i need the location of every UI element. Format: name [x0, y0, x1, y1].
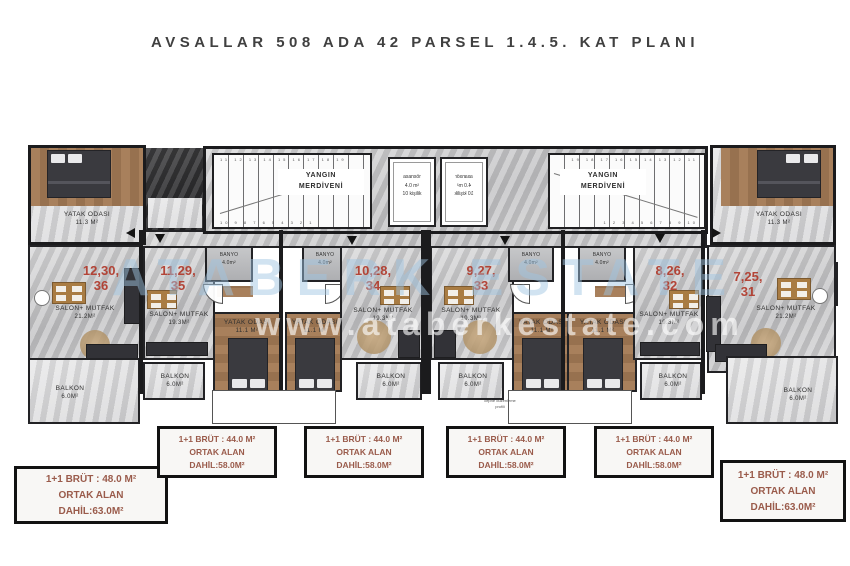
elevator-1: asansör 4.0 m² 10 kişilik — [388, 157, 436, 227]
bed-pillow — [544, 379, 559, 388]
sofa-icon — [146, 342, 208, 356]
room-name: BALKON — [644, 372, 702, 381]
room-name: BALKON — [444, 372, 502, 381]
bed-icon — [228, 338, 268, 391]
watermark-brand: ATABERK ESTATE — [40, 248, 810, 308]
bed-pillow — [804, 154, 818, 163]
room-label-balcony: BALKON 6.0M² — [444, 372, 502, 389]
bed-pillow — [605, 379, 620, 388]
entry-arrow-down-icon — [500, 236, 510, 245]
watermark-url: www.ataberkestate.com — [240, 306, 760, 343]
bed-icon — [583, 338, 623, 391]
room-area: 19.3M² — [145, 319, 213, 327]
balcony: BALKON 6.0M² — [640, 362, 702, 400]
legend-line3: DAHİL:58.0M² — [160, 459, 274, 471]
entry-arrow-down-icon — [655, 234, 665, 243]
legend-line1: 1+1 BRÜT : 44.0 M² — [160, 433, 274, 445]
entry-arrow-right-icon — [712, 228, 721, 238]
room-name: YATAK ODASI — [39, 210, 135, 219]
elevator-capacity: 10 kişilik — [446, 190, 482, 199]
building-core: 11 12 13 14 15 16 17 18 19 10 9 8 7 6 5 … — [203, 146, 708, 234]
legend-line2: ORTAK ALAN — [160, 446, 274, 458]
legend-line1: 1+1 BRÜT : 48.0 M² — [17, 472, 165, 487]
balcony: BALKON 6.0M² — [28, 358, 140, 424]
room-name: BALKON — [40, 384, 100, 393]
fire-stairs-label-line2: MERDİVENİ — [278, 182, 364, 193]
facade-note-line2: profili — [474, 404, 526, 410]
bed-blanket — [758, 181, 820, 184]
elevator-area: 4.0 m² — [394, 182, 430, 191]
elevator-capacity: 10 kişilik — [394, 190, 430, 199]
room-name: BALKON — [768, 386, 828, 395]
balcony: BALKON 6.0M² — [438, 362, 504, 400]
bed-pillow — [68, 154, 82, 163]
bed-icon — [522, 338, 562, 391]
fire-stairs-label-line1: YANGIN — [278, 171, 364, 182]
fire-stairs-label-line2: MERDİVENİ — [560, 182, 646, 193]
stair-numbers-top: 11 12 13 14 15 16 17 18 19 — [220, 157, 347, 162]
room-area: 21.2M² — [44, 313, 126, 321]
fire-stairs-label-right: YANGIN MERDİVENİ — [560, 169, 646, 195]
balcony: BALKON 6.0M² — [726, 356, 838, 424]
stair-numbers-top: 19 18 17 16 15 14 13 12 11 — [571, 157, 698, 162]
legend-line2: ORTAK ALAN — [307, 446, 421, 458]
room-name: YATAK ODASI — [731, 210, 827, 219]
wall-column-dot — [812, 288, 828, 304]
legend-line1: 1+1 BRÜT : 48.0 M² — [723, 468, 843, 483]
room-area: 6.0M² — [362, 381, 420, 389]
elevator-1-label: asansör 4.0 m² 10 kişilik — [393, 162, 431, 222]
room-name: BALKON — [362, 372, 420, 381]
room-label-balcony: BALKON 6.0M² — [768, 386, 828, 403]
room-label-balcony: BALKON 6.0M² — [644, 372, 702, 389]
bed-icon — [757, 150, 821, 198]
legend-line3: DAHİL:63.0M² — [17, 504, 165, 519]
legend-line3: DAHİL:63.0M² — [723, 500, 843, 515]
legend-line1: 1+1 BRÜT : 44.0 M² — [449, 433, 563, 445]
room-area: 6.0M² — [40, 393, 100, 401]
elevator-2: asansör 4.0 m² 10 kişilik — [440, 157, 488, 227]
room-label-salon: SALON+ MUTFAK 19.3M² — [145, 310, 213, 327]
bed-pillow — [317, 379, 332, 388]
bay-window-outline — [212, 390, 336, 424]
room-label-bedroom: YATAK ODASI 11.3 M² — [39, 210, 135, 227]
fire-stairs-label-line1: YANGIN — [560, 171, 646, 182]
entry-arrow-down-icon — [347, 236, 357, 245]
bed-pillow — [232, 379, 247, 388]
room-area: 11.3 M² — [39, 219, 135, 227]
legend-line3: DAHİL:58.0M² — [307, 459, 421, 471]
room-label-balcony: BALKON 6.0M² — [40, 384, 100, 401]
legend-line2: ORTAK ALAN — [723, 484, 843, 499]
room-label-bedroom: YATAK ODASI 11.3 M² — [731, 210, 827, 227]
sofa-icon — [640, 342, 700, 356]
bed-icon — [47, 150, 111, 198]
corridor-to-left-wing — [148, 198, 202, 228]
room-name: BALKON — [146, 372, 204, 381]
bed-icon — [295, 338, 335, 391]
legend-line2: ORTAK ALAN — [597, 446, 711, 458]
room-label-balcony: BALKON 6.0M² — [362, 372, 420, 389]
corner-bedroom-right: YATAK ODASI 11.3 M² — [710, 145, 836, 245]
facade-note: cephe düzenleme profili — [474, 398, 526, 409]
elevator-2-label: asansör 4.0 m² 10 kişilik — [445, 162, 483, 222]
elevator-name: asansör — [446, 173, 482, 182]
room-name: SALON+ MUTFAK — [145, 310, 213, 319]
legend-box-mid-3: 1+1 BRÜT : 44.0 M² ORTAK ALAN DAHİL:58.0… — [446, 426, 566, 478]
legend-box-mid-2: 1+1 BRÜT : 44.0 M² ORTAK ALAN DAHİL:58.0… — [304, 426, 424, 478]
elevator-area: 4.0 m² — [446, 182, 482, 191]
room-area: 11.3 M² — [731, 219, 827, 227]
legend-box-mid-4: 1+1 BRÜT : 44.0 M² ORTAK ALAN DAHİL:58.0… — [594, 426, 714, 478]
bed-pillow — [526, 379, 541, 388]
floor-plan-page: AVSALLAR 508 ADA 42 PARSEL 1.4.5. KAT PL… — [0, 0, 850, 566]
room-label-balcony: BALKON 6.0M² — [146, 372, 204, 389]
room-area: 6.0M² — [644, 381, 702, 389]
legend-box-mid-1: 1+1 BRÜT : 44.0 M² ORTAK ALAN DAHİL:58.0… — [157, 426, 277, 478]
entry-arrow-left-icon — [126, 228, 135, 238]
room-area: 6.0M² — [146, 381, 204, 389]
legend-line1: 1+1 BRÜT : 44.0 M² — [307, 433, 421, 445]
stair-numbers-bottom: 1 2 3 4 5 6 7 8 9 10 — [604, 220, 698, 225]
stair-numbers-bottom: 10 9 8 7 6 5 4 3 2 1 — [220, 220, 314, 225]
legend-box-end-left: 1+1 BRÜT : 48.0 M² ORTAK ALAN DAHİL:63.0… — [14, 466, 168, 524]
bay-window-outline — [508, 390, 632, 424]
room-area: 6.0M² — [444, 381, 502, 389]
legend-line1: 1+1 BRÜT : 44.0 M² — [597, 433, 711, 445]
entry-arrow-down-icon — [155, 234, 165, 243]
bed-pillow — [786, 154, 800, 163]
room-area: 6.0M² — [768, 395, 828, 403]
bed-pillow — [51, 154, 65, 163]
legend-box-end-right: 1+1 BRÜT : 48.0 M² ORTAK ALAN DAHİL:63.0… — [720, 460, 846, 522]
fire-stairs-label-left: YANGIN MERDİVENİ — [278, 169, 364, 195]
elevator-name: asansör — [394, 173, 430, 182]
balcony: BALKON 6.0M² — [143, 362, 205, 400]
legend-line2: ORTAK ALAN — [17, 488, 165, 503]
bed-pillow — [250, 379, 265, 388]
balcony: BALKON 6.0M² — [356, 362, 422, 400]
legend-line2: ORTAK ALAN — [449, 446, 563, 458]
bed-pillow — [587, 379, 602, 388]
bed-blanket — [48, 181, 110, 184]
legend-line3: DAHİL:58.0M² — [597, 459, 711, 471]
legend-line3: DAHİL:58.0M² — [449, 459, 563, 471]
bed-pillow — [299, 379, 314, 388]
